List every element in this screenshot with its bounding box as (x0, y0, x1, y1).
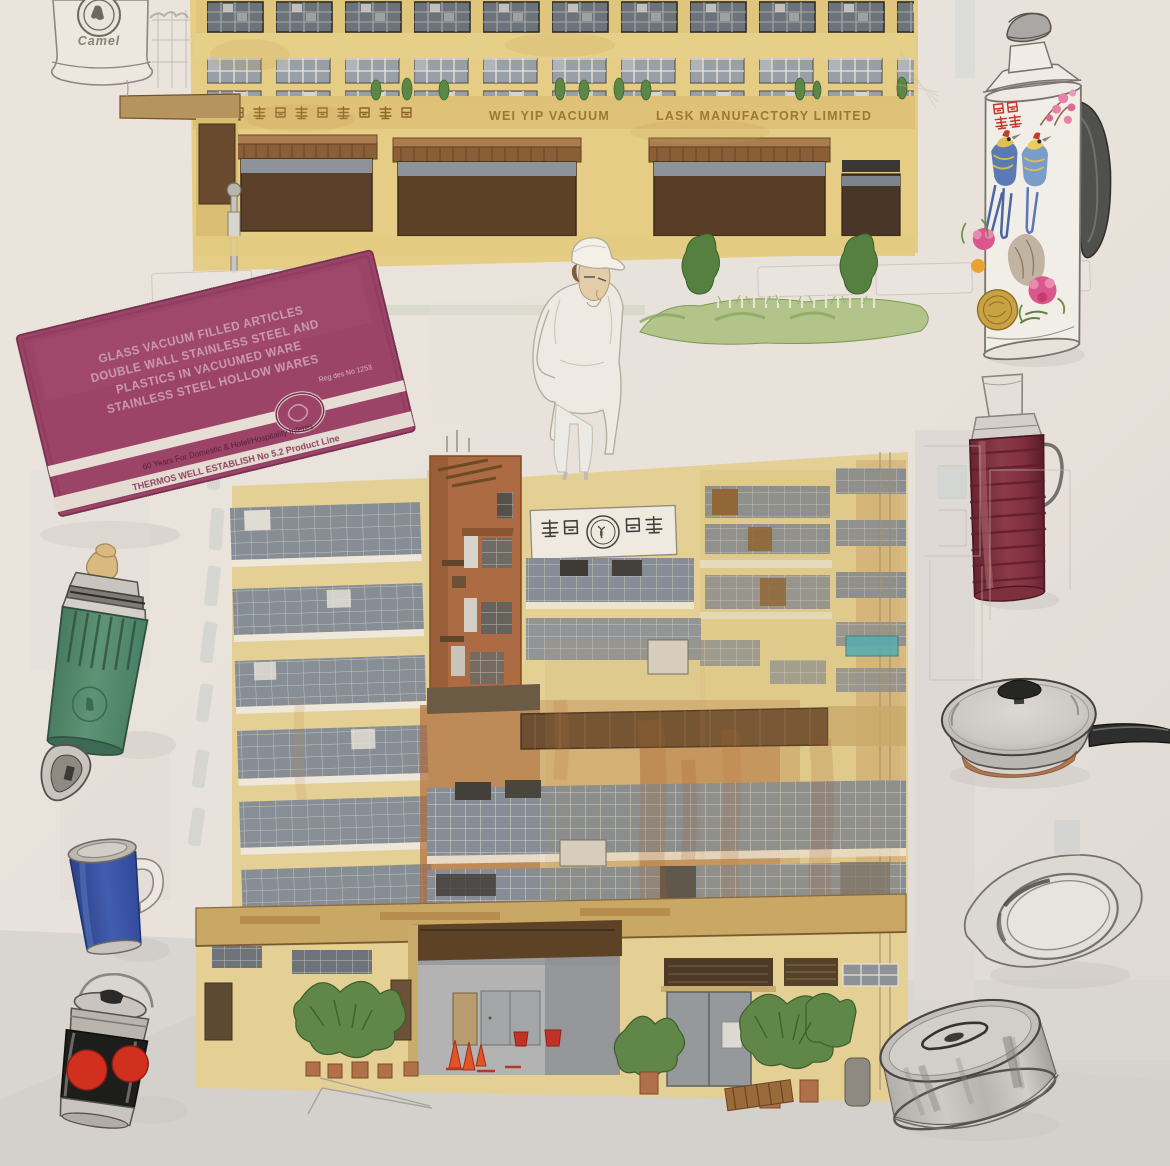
svg-text:Camel: Camel (78, 34, 121, 48)
svg-text:WEI YIP VACUUM: WEI YIP VACUUM (489, 109, 610, 123)
